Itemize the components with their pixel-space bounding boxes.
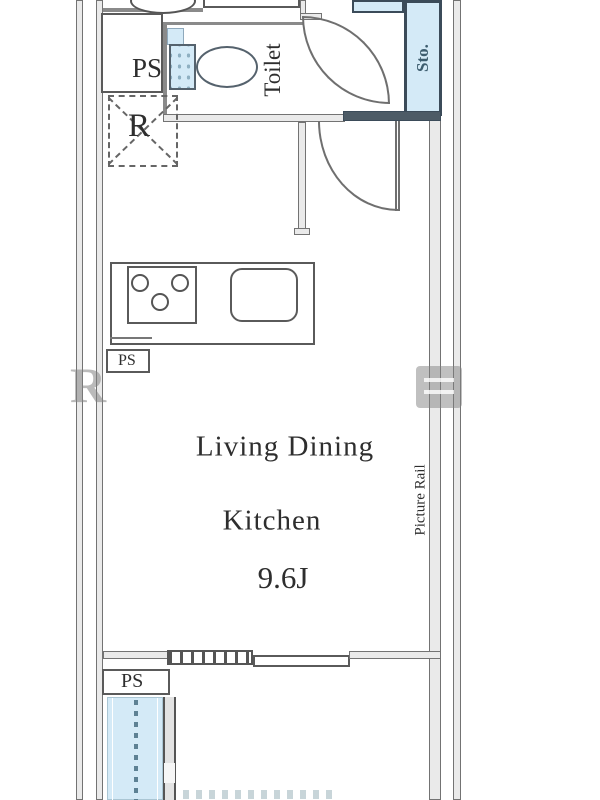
watermark-block-slit — [424, 378, 454, 382]
toilet-label: Toilet — [260, 43, 286, 96]
stove-burner-icon — [131, 274, 149, 292]
kitchen-label: Kitchen — [223, 505, 322, 538]
picture-rail-label: Picture Rail — [413, 464, 430, 535]
stove-burner-icon — [171, 274, 189, 292]
wall-hall-bottom-dark — [343, 111, 441, 121]
wall-ldk-bottom-right — [349, 651, 441, 659]
pipe-space-bottom-label: PS — [121, 670, 143, 693]
window-inner-line — [112, 698, 113, 800]
wall-bottom-room — [163, 697, 176, 800]
window-inner-line — [157, 698, 158, 800]
wall-ldk-entry-cap — [294, 228, 310, 235]
sliding-door-panel — [253, 655, 350, 667]
watermark-bottom — [183, 790, 333, 799]
watermark-letter: R — [70, 362, 106, 408]
living-dining-label: Living Dining — [196, 431, 374, 464]
area-label: 9.6J — [258, 560, 309, 596]
wall-ldk-entry-stub — [298, 122, 306, 230]
wall-toilet-top — [163, 22, 303, 25]
watermark-block-slit — [424, 390, 454, 394]
entrance-cabinet — [352, 0, 404, 13]
toilet-bowl-icon — [196, 46, 258, 88]
sliding-door-track — [167, 650, 253, 665]
wall-ldk-bottom-left — [103, 651, 169, 659]
washroom-counter — [203, 0, 300, 8]
storage-label: Sto. — [413, 44, 433, 72]
floor-plan: PS Toilet Sto. R PS R Living Dining Kitc… — [0, 0, 600, 800]
ldk-door-arc — [318, 121, 398, 211]
toilet-tank-icon — [169, 44, 196, 90]
pipe-space-mid-label: PS — [118, 352, 136, 370]
watermark-block — [416, 366, 462, 408]
sink-icon — [230, 268, 298, 322]
counter-step-line — [110, 337, 152, 339]
pipe-space-top-label: PS — [132, 53, 162, 84]
stove-burner-icon — [151, 293, 169, 311]
wall-right-inner — [429, 113, 441, 800]
window-center-dashed-line — [134, 700, 138, 800]
wall-bottom-room-break — [164, 763, 175, 783]
bathroom-window-strip — [107, 697, 163, 800]
toilet-plumbing-corner — [167, 28, 184, 45]
refrigerator-label: R — [128, 108, 150, 145]
